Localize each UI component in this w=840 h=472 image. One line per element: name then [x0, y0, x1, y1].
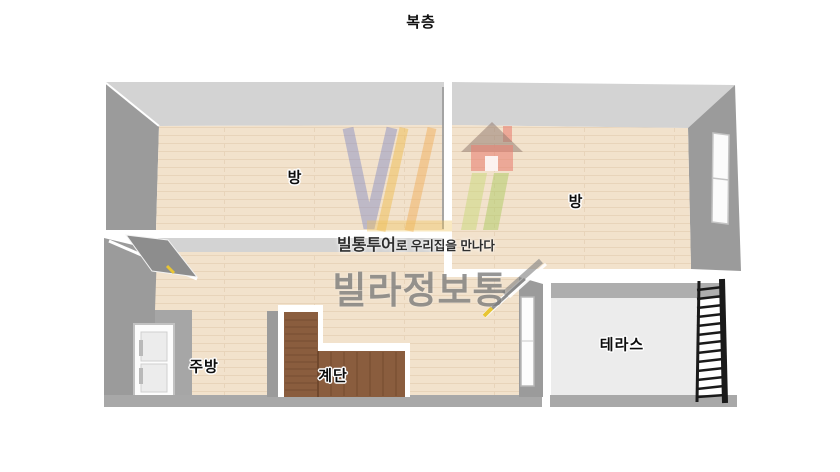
- terrace-label: 테라스: [600, 334, 644, 355]
- refrigerator: [134, 324, 174, 398]
- watermark-brand: 빌라정보통: [332, 260, 507, 314]
- watermark-tagline: 빌통투어로 우리집을 만나다: [337, 231, 495, 255]
- stairs-label: 계단: [318, 365, 348, 386]
- room-label-top-right: 방: [569, 191, 584, 212]
- plan-title: 복층: [406, 11, 436, 32]
- watermark-tagline-rest: 로 우리집을 만나다: [396, 239, 495, 253]
- window: [712, 133, 729, 224]
- room-label-top-left: 방: [288, 167, 303, 188]
- watermark-tagline-brand: 빌통투어: [337, 237, 396, 254]
- ladder-icon: [697, 279, 725, 403]
- floorplan-page: 복층 방 방 주방 계단 테라스 빌통투어로 우리집을 만나다 빌라정보통: [0, 0, 840, 472]
- kitchen-label: 주방: [189, 356, 219, 377]
